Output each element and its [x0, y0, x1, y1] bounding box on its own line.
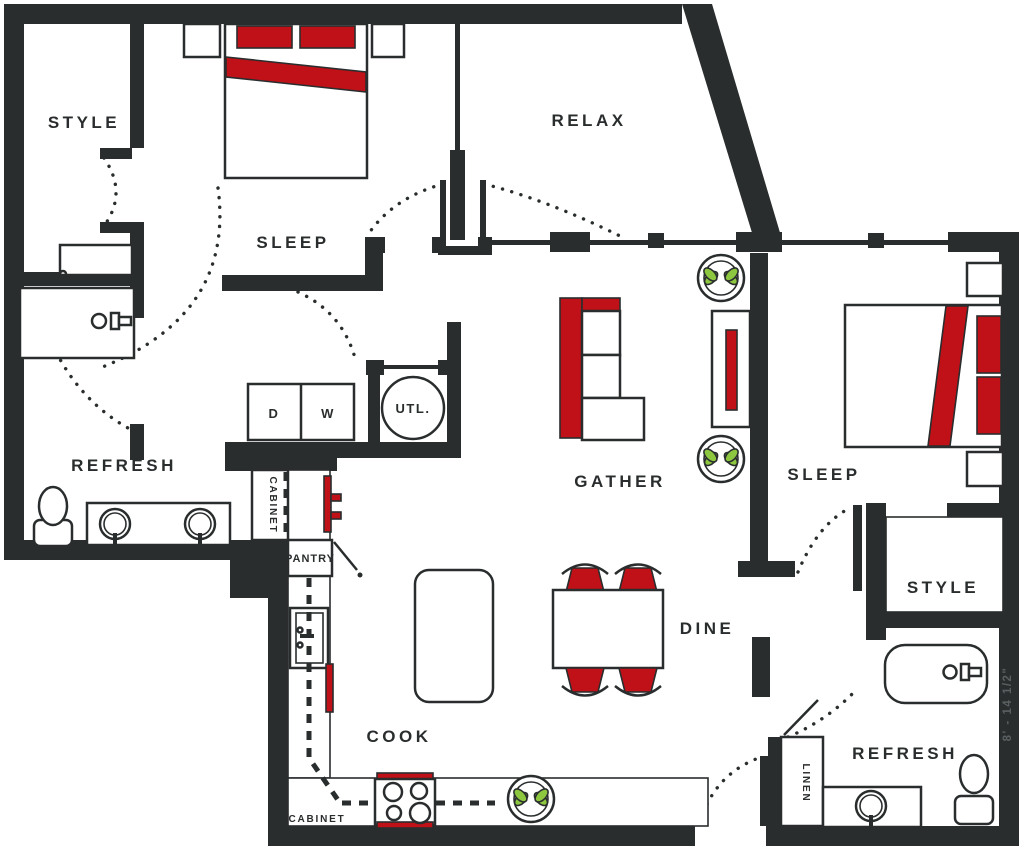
- room-labels: STYLE SLEEP RELAX REFRESH GATHER SLEEP S…: [48, 111, 1014, 825]
- pantry-door-dot: [358, 573, 363, 578]
- window-sill: [782, 240, 868, 245]
- wall-segment: [752, 637, 770, 697]
- sofa-chaise: [582, 398, 644, 440]
- dining-table: [553, 590, 663, 668]
- fridge-handle: [331, 494, 341, 501]
- floor-plan-drawing: STYLE SLEEP RELAX REFRESH GATHER SLEEP S…: [0, 0, 1023, 847]
- plants: [508, 255, 744, 822]
- fridge-door: [324, 476, 331, 532]
- sink-faucet: [869, 815, 873, 826]
- label-dimension-right-wall: 8' - 14 1/2": [1002, 667, 1014, 742]
- label-cabinet-top: CABINET: [267, 476, 278, 533]
- tub-drain: [944, 666, 957, 679]
- wall-segment: [130, 424, 144, 460]
- wall-segment: [268, 826, 695, 846]
- wall-segment: [225, 455, 337, 471]
- french-door-mullion: [455, 24, 460, 156]
- wall-angled: [682, 4, 781, 236]
- wall-jamb: [438, 360, 456, 375]
- label-cabinet-bottom: CABINET: [288, 814, 345, 825]
- wall-segment: [130, 24, 144, 148]
- tub-drain: [92, 314, 106, 328]
- dining-chair: [566, 568, 604, 592]
- room-label-relax: RELAX: [551, 111, 626, 130]
- sofa-arm: [582, 298, 620, 311]
- closet-bench: [60, 245, 132, 275]
- sofa-back: [560, 298, 582, 438]
- nightstand: [967, 452, 1003, 486]
- dining-chair: [566, 668, 604, 692]
- room-label-sleep2: SLEEP: [787, 465, 860, 484]
- fridge-handle: [331, 512, 341, 519]
- bed-pillow: [977, 377, 1001, 434]
- room-label-dine: DINE: [680, 619, 735, 638]
- door-arc-bedroom2: [798, 508, 850, 572]
- sink-faucet: [198, 533, 202, 544]
- toilet-bowl: [960, 755, 988, 793]
- nightstand: [967, 263, 1003, 296]
- wall-segment: [750, 253, 768, 575]
- burner: [384, 783, 402, 801]
- wall-segment: [736, 232, 782, 252]
- room-label-style2: STYLE: [907, 578, 979, 597]
- bath2-fixtures: [781, 645, 993, 827]
- door-arc-laundry: [298, 292, 355, 358]
- sink-basin: [189, 513, 211, 535]
- sink-faucet: [113, 533, 117, 544]
- room-label-cook: COOK: [367, 727, 432, 746]
- wall-segment: [447, 322, 461, 458]
- window-sill: [884, 240, 948, 245]
- plant-icon: [698, 436, 744, 482]
- toilet-tank: [955, 796, 993, 824]
- window-sill: [664, 240, 736, 245]
- nightstand: [184, 24, 220, 57]
- wall-segment: [948, 232, 1019, 252]
- linen-door: [784, 700, 818, 735]
- wall-segment: [268, 560, 288, 846]
- wall-jamb: [366, 360, 384, 375]
- window-mullion: [868, 233, 884, 248]
- pantry-door: [334, 542, 357, 570]
- entry-door-leaf: [760, 756, 770, 826]
- burner: [410, 803, 430, 823]
- room-label-refresh2: REFRESH: [852, 744, 958, 763]
- wall-segment: [766, 826, 1019, 846]
- door-arc-balcony-right: [484, 184, 624, 238]
- tub-faucet-spout: [969, 668, 981, 676]
- nightstand: [372, 24, 404, 57]
- bedroom2-door-leaf: [853, 505, 862, 591]
- label-linen: LINEN: [800, 764, 811, 803]
- wall-segment: [947, 503, 1019, 517]
- floor-plan: STYLE SLEEP RELAX REFRESH GATHER SLEEP S…: [0, 0, 1023, 847]
- label-washer: W: [321, 406, 335, 421]
- door-arc-bath1: [56, 352, 128, 428]
- label-dryer: D: [269, 406, 280, 421]
- door-arc-closet1: [104, 158, 116, 226]
- wall-segment: [550, 232, 590, 252]
- door-stop-line: [382, 365, 440, 369]
- plant-icon: [508, 776, 554, 822]
- gather-furniture: [560, 298, 750, 440]
- window-sill: [492, 240, 550, 245]
- bath1-fixtures: [20, 288, 230, 546]
- sink-basin: [860, 795, 882, 817]
- french-door-post: [450, 150, 465, 240]
- dining-furniture: [553, 565, 663, 696]
- room-label-sleep1: SLEEP: [256, 233, 329, 252]
- plant-icon: [698, 255, 744, 301]
- wall-segment: [222, 275, 370, 291]
- door-arc-bath2: [788, 689, 857, 737]
- tv-screen: [726, 330, 737, 410]
- bed-pillow: [237, 26, 292, 48]
- sofa-seat: [582, 355, 620, 398]
- room-label-gather: GATHER: [574, 472, 666, 491]
- dining-chair: [619, 668, 657, 692]
- sink-basin: [104, 513, 126, 535]
- french-door-base: [438, 246, 492, 255]
- window-sill: [590, 240, 648, 245]
- door-swings: [56, 158, 948, 822]
- wall-jamb: [738, 561, 795, 577]
- room-label-style1: STYLE: [48, 113, 120, 132]
- room-label-refresh1: REFRESH: [71, 456, 177, 475]
- wall-jamb: [100, 222, 132, 233]
- sofa-seat: [582, 311, 620, 355]
- door-arc-balcony-left: [367, 184, 443, 236]
- wall-segment: [4, 4, 682, 24]
- closet2-interior: [886, 517, 1003, 612]
- burner: [387, 806, 401, 820]
- tub-faucet-spout: [119, 317, 131, 325]
- label-pantry: PANTRY: [285, 553, 335, 565]
- dining-chair: [619, 568, 657, 592]
- french-door-leaf: [440, 180, 446, 240]
- label-utility: UTL.: [396, 401, 431, 416]
- wall-segment: [866, 612, 1019, 628]
- toilet-bowl: [39, 487, 67, 525]
- kitchen-island: [415, 570, 493, 702]
- dishwasher-front: [326, 664, 333, 712]
- bed-pillow: [300, 26, 355, 48]
- window-mullion: [648, 233, 664, 248]
- burner: [411, 783, 427, 799]
- french-door-leaf: [480, 180, 486, 240]
- bed-pillow: [977, 316, 1001, 373]
